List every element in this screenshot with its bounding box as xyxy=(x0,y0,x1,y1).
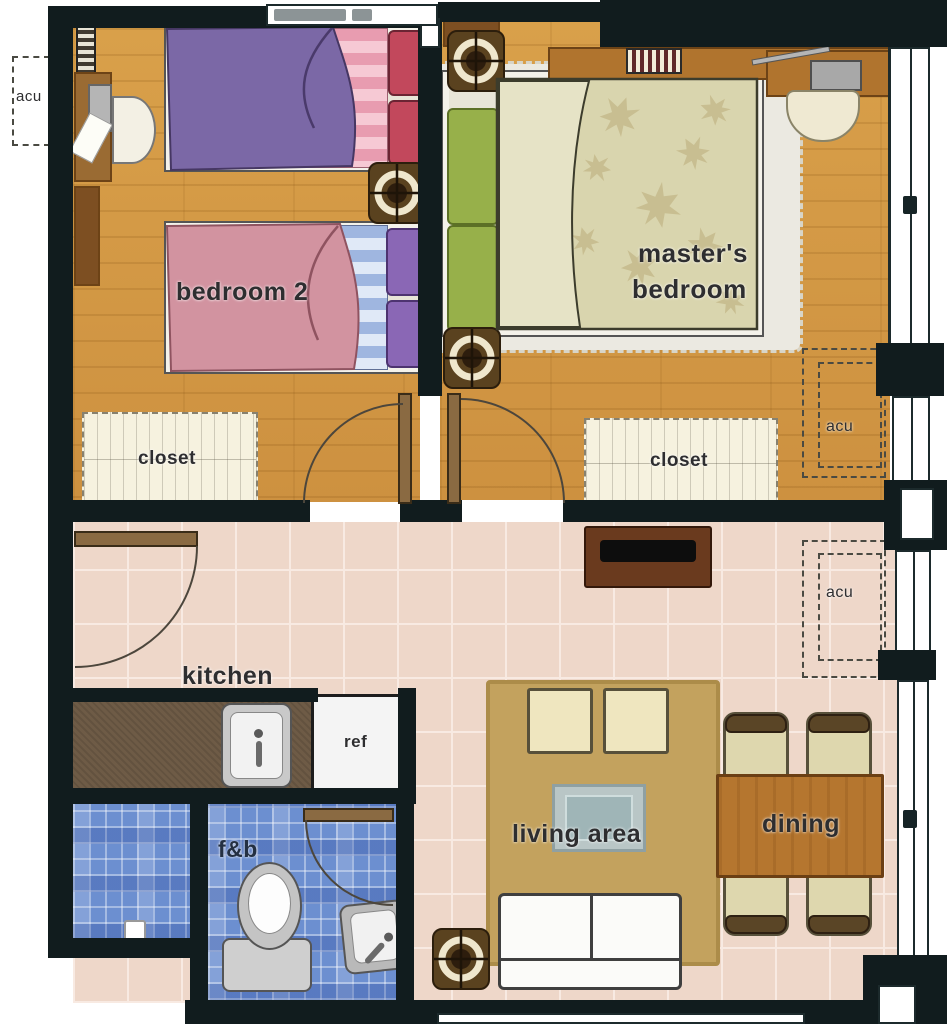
wall-bedrooms-bottom-left xyxy=(48,500,310,522)
kitchen-sink-icon xyxy=(221,703,292,788)
laptop-icon xyxy=(810,60,862,91)
corner-window-pane xyxy=(878,985,916,1024)
window-mullion-tick xyxy=(903,196,917,214)
tv-icon xyxy=(600,540,696,562)
room-label-living: living area xyxy=(512,820,641,849)
wall-pier-right-1 xyxy=(876,343,944,396)
sofa xyxy=(498,893,682,990)
acu-label-master: acu xyxy=(826,418,853,436)
acu-label-living: acu xyxy=(826,584,853,602)
bed2-mattress-stripes xyxy=(300,225,388,370)
wall-bath-divider xyxy=(190,802,208,1005)
toilet-bowl xyxy=(248,873,291,934)
wall-top-master-thick xyxy=(600,0,947,47)
window-sill-mark xyxy=(352,9,372,21)
room-label-kitchen: kitchen xyxy=(182,662,273,691)
room-label-bedroom2: bedroom 2 xyxy=(176,278,308,307)
bedroom2-shelf xyxy=(74,186,100,286)
acu-label-exterior: acu xyxy=(16,88,42,105)
window-mullion-tick xyxy=(903,810,917,828)
faucet-icon xyxy=(254,729,263,738)
armchair-cushion xyxy=(603,688,669,754)
window-right-3 xyxy=(895,550,931,652)
wall-shower-bottom xyxy=(48,938,208,958)
window-right-2 xyxy=(892,396,930,484)
master-pillow xyxy=(447,108,499,225)
acu-box-inner-master xyxy=(818,362,882,468)
sprinkler-icon xyxy=(432,928,490,995)
wall-kitchen-bottom xyxy=(72,788,404,804)
sprinkler-icon xyxy=(447,30,505,97)
wall-kitchen-right xyxy=(398,688,416,804)
vent-grille-icon xyxy=(626,48,682,74)
closet-label-master: closet xyxy=(650,450,708,472)
room-label-dining: dining xyxy=(762,810,840,839)
wall-bottom-left-ext xyxy=(185,1016,437,1024)
toilet-icon xyxy=(237,862,302,950)
wall-bath-right xyxy=(396,790,414,1003)
window-sill-mark xyxy=(274,9,346,21)
window-bottom xyxy=(437,1013,805,1024)
wall-top-master-thin xyxy=(438,2,604,22)
wall-pier-right-3 xyxy=(878,650,936,680)
wall-divider-bedrooms xyxy=(418,6,442,396)
floor-plan: bedroom 2 master's bedroom closet closet… xyxy=(0,0,947,1024)
room-label-master-line2: bedroom xyxy=(632,274,747,305)
room-label-master-line1: master's xyxy=(638,238,748,269)
master-pillow xyxy=(447,225,499,332)
ref-label: ref xyxy=(344,732,367,752)
closet-label-bedroom2: closet xyxy=(138,448,196,470)
wall-left xyxy=(48,6,73,946)
acu-box-inner-living xyxy=(818,553,882,661)
pier-window-pane xyxy=(900,488,934,540)
armchair-cushion xyxy=(527,688,593,754)
faucet-stem xyxy=(256,741,262,767)
room-label-fb: f&b xyxy=(218,836,258,863)
bed1-mattress-stripes xyxy=(300,28,388,168)
door-leaf-entry xyxy=(74,531,198,547)
door-leaf-master xyxy=(447,393,461,504)
sprinkler-icon xyxy=(443,327,501,394)
wall-bedrooms-bottom-right xyxy=(563,500,898,522)
